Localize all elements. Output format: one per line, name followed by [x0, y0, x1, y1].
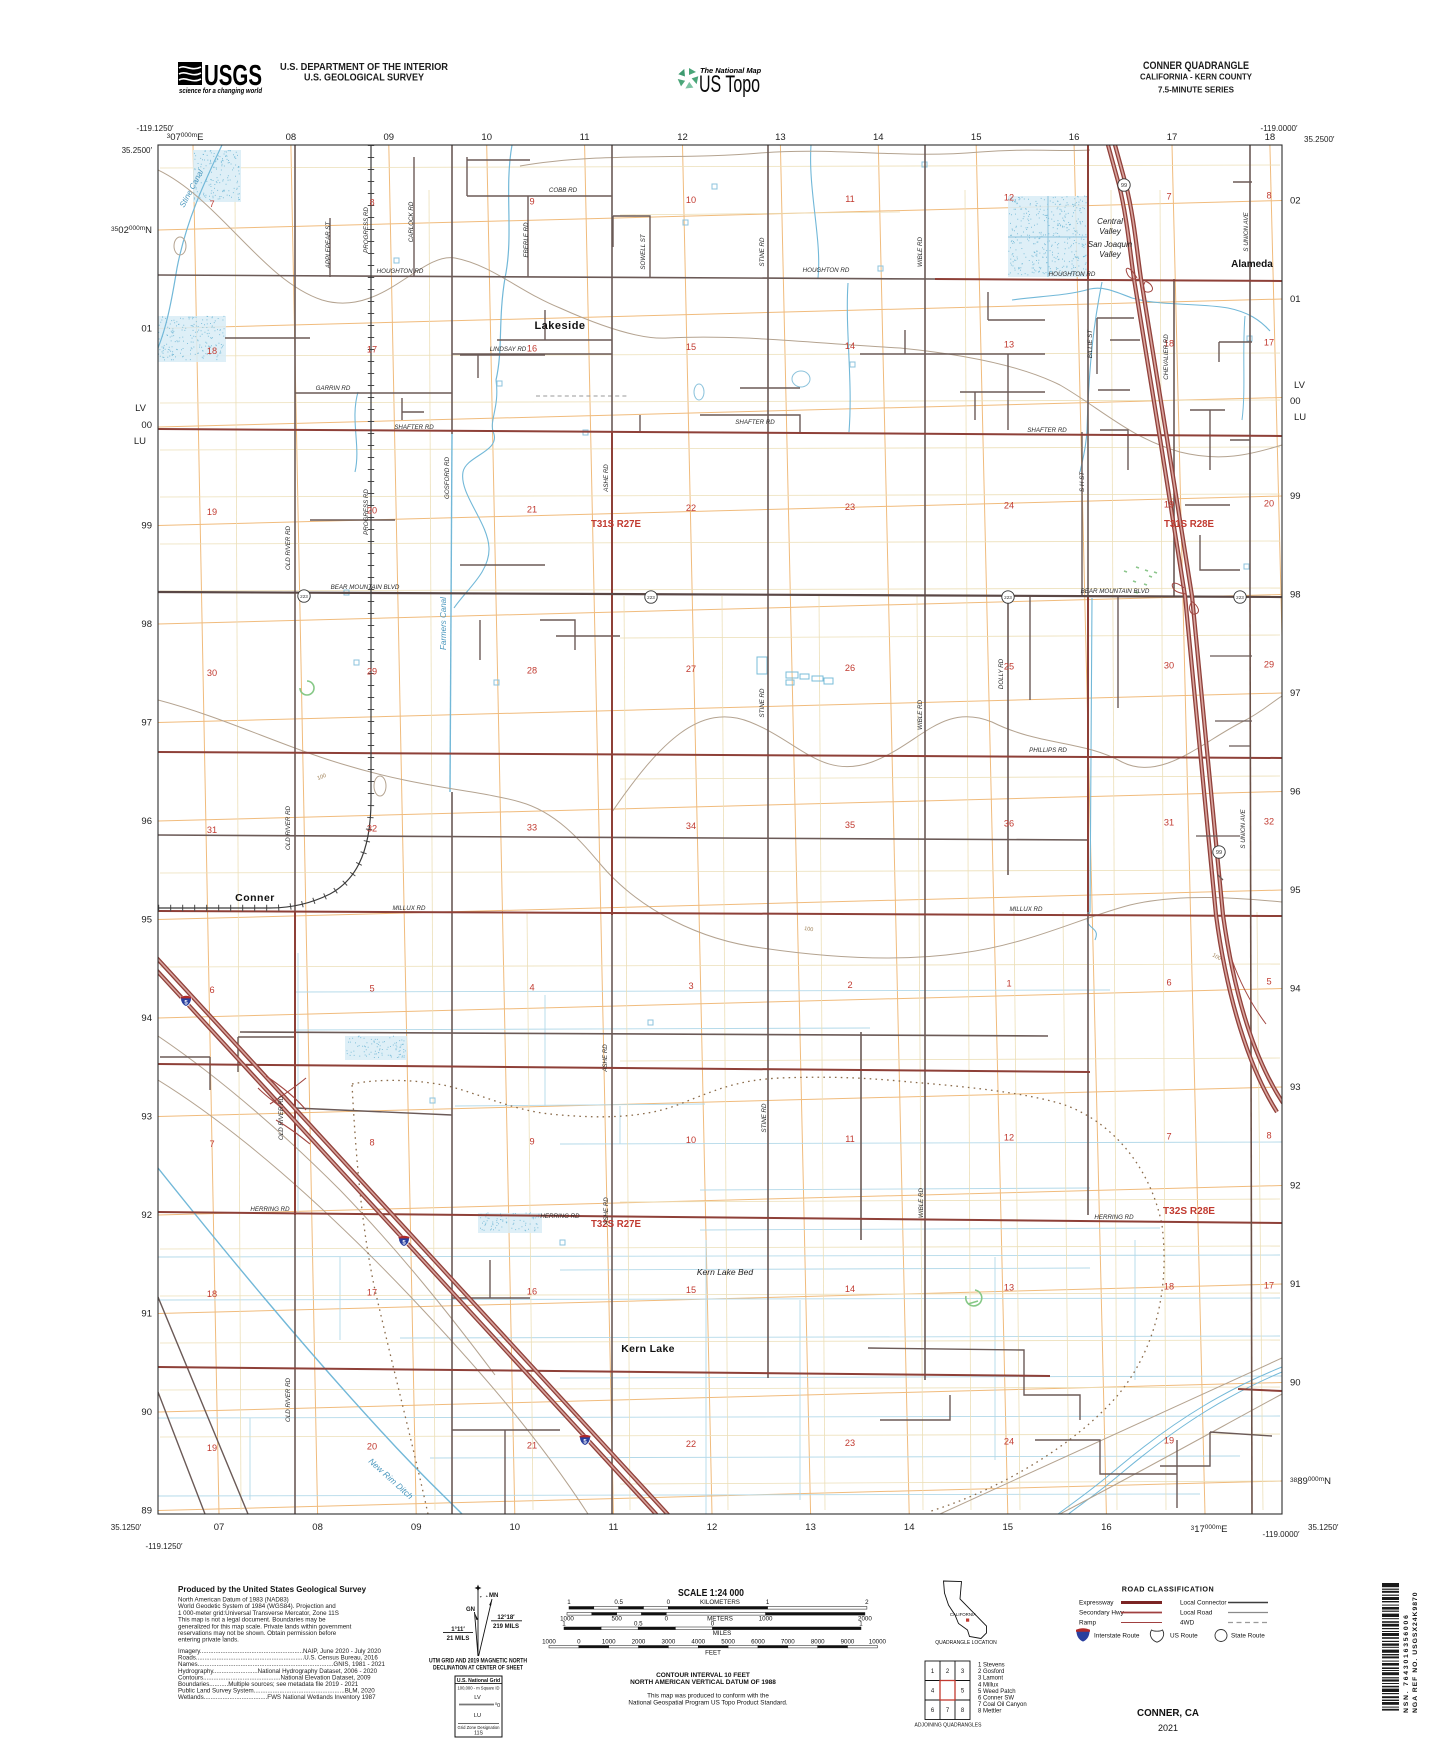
svg-text:12: 12 [1004, 1133, 1014, 1143]
svg-text:18: 18 [1265, 132, 1276, 143]
svg-text:18: 18 [207, 1289, 217, 1299]
svg-text:4: 4 [529, 982, 534, 992]
svg-text:93: 93 [141, 1112, 152, 1123]
svg-text:13: 13 [805, 1522, 816, 1533]
svg-text:Local Connector: Local Connector [1180, 1600, 1227, 1607]
svg-text:T32S R27E: T32S R27E [591, 1219, 641, 1230]
svg-text:Ramp: Ramp [1079, 1620, 1096, 1627]
svg-text:90: 90 [1290, 1378, 1301, 1389]
svg-text:14: 14 [845, 341, 855, 351]
svg-text:11: 11 [845, 194, 855, 204]
svg-text:21: 21 [527, 504, 537, 514]
svg-text:93: 93 [1290, 1082, 1301, 1093]
svg-text:6000: 6000 [751, 1639, 765, 1646]
svg-text:21 MILS: 21 MILS [447, 1636, 470, 1642]
svg-text:16: 16 [1101, 1522, 1112, 1533]
svg-text:10: 10 [510, 1522, 521, 1533]
svg-text:-119.1250′: -119.1250′ [137, 124, 174, 133]
svg-text:15: 15 [971, 132, 982, 143]
svg-text:1000: 1000 [759, 1616, 773, 1623]
svg-text:19: 19 [1164, 499, 1174, 509]
svg-text:25: 25 [1004, 662, 1014, 672]
svg-text:8: 8 [1266, 1131, 1271, 1141]
svg-text:S H ST: S H ST [1079, 471, 1086, 492]
svg-text:CONNER, CA: CONNER, CA [1137, 1707, 1199, 1719]
svg-text:HERRING RD: HERRING RD [250, 1206, 290, 1213]
svg-text:BEAR MOUNTAIN BLVD: BEAR MOUNTAIN BLVD [1081, 588, 1150, 595]
svg-text:10: 10 [686, 1135, 696, 1145]
svg-text:5: 5 [1266, 977, 1271, 987]
svg-text:4000: 4000 [691, 1639, 705, 1646]
svg-text:92: 92 [141, 1210, 152, 1221]
svg-text:14: 14 [845, 1284, 855, 1294]
svg-text:National Geospatial Program US: National Geospatial Program US Topo Prod… [628, 1700, 787, 1707]
svg-text:0: 0 [667, 1599, 671, 1606]
svg-text:science for a changing world: science for a changing world [179, 86, 262, 95]
svg-text:2021: 2021 [1158, 1723, 1178, 1733]
svg-text:SCALE 1:24 000: SCALE 1:24 000 [678, 1587, 744, 1599]
svg-text:GARRIN RD: GARRIN RD [316, 385, 351, 392]
svg-text:US Topo: US Topo [699, 71, 760, 98]
svg-text:90: 90 [141, 1407, 152, 1418]
svg-text:00: 00 [1290, 396, 1301, 407]
svg-text:08: 08 [312, 1522, 323, 1533]
svg-text:GN: GN [466, 1607, 475, 1613]
svg-text:LU: LU [1294, 412, 1306, 423]
svg-text:32: 32 [367, 824, 377, 834]
svg-text:US Route: US Route [1170, 1633, 1198, 1640]
svg-text:LINDSAY RD: LINDSAY RD [490, 346, 527, 353]
svg-text:7: 7 [1166, 191, 1171, 201]
svg-text:HOUGHTON RD: HOUGHTON RD [1049, 271, 1096, 278]
svg-text:NGA REF NO. USGSX24K9870: NGA REF NO. USGSX24K9870 [1412, 1591, 1419, 1713]
svg-text:STINE RD: STINE RD [759, 237, 766, 266]
svg-text:17: 17 [1264, 338, 1274, 348]
svg-text:1: 1 [562, 1621, 566, 1628]
svg-text:U.S. GEOLOGICAL SURVEY: U.S. GEOLOGICAL SURVEY [304, 73, 424, 84]
svg-text:BEAR MOUNTAIN BLVD: BEAR MOUNTAIN BLVD [331, 584, 400, 591]
svg-text:9: 9 [529, 1136, 534, 1146]
svg-text:19: 19 [1164, 1435, 1174, 1445]
svg-text:96: 96 [141, 816, 152, 827]
svg-text:Farmers Canal: Farmers Canal [439, 597, 448, 650]
svg-text:97: 97 [1290, 688, 1301, 699]
svg-text:2000: 2000 [632, 1639, 646, 1646]
svg-text:27: 27 [686, 664, 696, 674]
svg-text:16: 16 [527, 1286, 537, 1296]
svg-text:10: 10 [686, 195, 696, 205]
svg-text:PHILLIPS RD: PHILLIPS RD [1029, 747, 1067, 754]
svg-text:32: 32 [1264, 817, 1274, 827]
svg-text:COBB RD: COBB RD [549, 187, 578, 194]
svg-text:20: 20 [1264, 499, 1274, 509]
svg-text:2 Gosford: 2 Gosford [978, 1669, 1004, 1675]
svg-text:DOLLY RD: DOLLY RD [998, 658, 1005, 689]
svg-text:S UNION AVE: S UNION AVE [1240, 808, 1247, 848]
svg-text:10: 10 [481, 132, 492, 143]
svg-text:01: 01 [1290, 294, 1301, 305]
svg-text:ADJOINING QUADRANGLES: ADJOINING QUADRANGLES [915, 1723, 983, 1729]
svg-text:99: 99 [1216, 850, 1222, 856]
svg-text:14: 14 [873, 132, 884, 143]
svg-text:16: 16 [527, 343, 537, 353]
svg-text:18: 18 [207, 346, 217, 356]
svg-text:CARLOCK RD: CARLOCK RD [408, 201, 415, 242]
svg-text:Produced by the United States: Produced by the United States Geological… [178, 1585, 367, 1594]
svg-text:15: 15 [686, 342, 696, 352]
svg-text:89: 89 [141, 1506, 152, 1517]
svg-text:-119.1250′: -119.1250′ [146, 1542, 183, 1551]
svg-text:HOUGHTON RD: HOUGHTON RD [377, 268, 424, 275]
svg-text:Alameda: Alameda [1231, 259, 1273, 270]
svg-text:WIBLE RD: WIBLE RD [917, 237, 924, 267]
svg-text:29: 29 [1264, 660, 1274, 670]
svg-text:PROGRESS RD: PROGRESS RD [363, 489, 370, 535]
svg-text:LV: LV [1294, 380, 1306, 391]
svg-text:07: 07 [214, 1522, 225, 1533]
svg-text:0.5: 0.5 [614, 1599, 623, 1606]
svg-text:6 Conner SW: 6 Conner SW [978, 1696, 1014, 1702]
svg-text:21: 21 [527, 1440, 537, 1450]
svg-text:SHAFTER RD: SHAFTER RD [394, 424, 434, 431]
svg-text:7: 7 [209, 1139, 214, 1149]
svg-text:5000: 5000 [721, 1639, 735, 1646]
svg-text:35.2500′: 35.2500′ [1304, 135, 1335, 144]
svg-text:96: 96 [1290, 787, 1301, 798]
svg-text:28: 28 [527, 665, 537, 675]
svg-text:Wetlands......................: Wetlands................................… [178, 1694, 376, 1701]
svg-text:95: 95 [141, 915, 152, 926]
svg-text:Valley: Valley [1099, 250, 1121, 259]
svg-text:100: 100 [804, 926, 814, 933]
svg-text:DECLINATION AT CENTER OF SHEET: DECLINATION AT CENTER OF SHEET [433, 1665, 523, 1672]
svg-text:MN: MN [489, 1593, 498, 1599]
svg-text:99: 99 [141, 521, 152, 532]
svg-text:BILLIE ST: BILLIE ST [1087, 329, 1094, 358]
svg-text:Valley: Valley [1099, 227, 1121, 236]
svg-text:1: 1 [859, 1621, 863, 1628]
svg-text:31: 31 [207, 825, 217, 835]
svg-text:LV: LV [474, 1695, 481, 1701]
svg-text:17: 17 [367, 345, 377, 355]
svg-text:UTM GRID AND 2019 MAGNETIC NOR: UTM GRID AND 2019 MAGNETIC NORTH [429, 1658, 527, 1665]
svg-text:12°18′: 12°18′ [497, 1615, 515, 1621]
svg-text:Local Road: Local Road [1180, 1610, 1213, 1617]
svg-text:12: 12 [707, 1522, 718, 1533]
svg-text:91: 91 [1290, 1279, 1301, 1290]
svg-text:223: 223 [1004, 595, 1012, 600]
svg-text:92: 92 [1290, 1181, 1301, 1192]
svg-text:0: 0 [577, 1639, 581, 1646]
svg-text:98: 98 [1290, 590, 1301, 601]
svg-text:13: 13 [775, 132, 786, 143]
svg-text:24: 24 [1004, 501, 1014, 511]
svg-text:ASHE RD: ASHE RD [603, 1197, 610, 1226]
svg-text:22: 22 [686, 503, 696, 513]
svg-text:31: 31 [1164, 817, 1174, 827]
svg-text:94: 94 [1290, 984, 1301, 995]
svg-text:94: 94 [141, 1013, 152, 1024]
svg-text:Kern Lake Bed: Kern Lake Bed [697, 1267, 754, 1277]
svg-text:36: 36 [1004, 819, 1014, 829]
svg-text:19: 19 [207, 1443, 217, 1453]
svg-text:223: 223 [300, 594, 308, 599]
svg-text:0: 0 [711, 1621, 715, 1628]
svg-text:35.2500′: 35.2500′ [122, 146, 153, 155]
svg-text:4WD: 4WD [1180, 1620, 1195, 1627]
svg-text:2: 2 [865, 1599, 869, 1606]
svg-text:This map was produced to confo: This map was produced to conform with th… [647, 1693, 769, 1700]
svg-text:9000: 9000 [841, 1639, 855, 1646]
svg-text:entering private lands.: entering private lands. [178, 1637, 239, 1644]
svg-text:24: 24 [1004, 1437, 1014, 1447]
svg-text:35: 35 [845, 820, 855, 830]
svg-text:12: 12 [1004, 193, 1014, 203]
svg-text:7000: 7000 [781, 1639, 795, 1646]
svg-text:09: 09 [384, 132, 395, 143]
svg-text:1000: 1000 [542, 1639, 556, 1646]
svg-text:HOUGHTON RD: HOUGHTON RD [803, 267, 850, 274]
svg-text:12: 12 [677, 132, 688, 143]
svg-text:01: 01 [141, 324, 152, 335]
svg-text:1: 1 [766, 1599, 770, 1606]
svg-text:Kern Lake: Kern Lake [621, 1343, 674, 1355]
svg-text:CONNER QUADRANGLE: CONNER QUADRANGLE [1143, 60, 1249, 72]
svg-text:NORTH AMERICAN VERTICAL DATUM: NORTH AMERICAN VERTICAL DATUM OF 1988 [630, 1679, 776, 1686]
svg-text:5: 5 [369, 984, 374, 994]
svg-text:MILLUX RD: MILLUX RD [392, 905, 426, 912]
svg-text:WIBLE RD: WIBLE RD [918, 1188, 925, 1218]
svg-text:19: 19 [207, 507, 217, 517]
svg-text:ASHE RD: ASHE RD [602, 1044, 609, 1073]
svg-text:ROAD CLASSIFICATION: ROAD CLASSIFICATION [1122, 1585, 1214, 1594]
svg-text:Grid Zone Designation: Grid Zone Designation [458, 1725, 500, 1730]
svg-text:1: 1 [567, 1599, 571, 1606]
svg-text:99: 99 [1121, 183, 1127, 189]
svg-text:EBERLE RD: EBERLE RD [523, 222, 530, 258]
svg-text:99: 99 [1290, 491, 1301, 502]
svg-text:SHAFTER RD: SHAFTER RD [735, 419, 775, 426]
svg-text:LU: LU [474, 1713, 481, 1719]
svg-text:17: 17 [367, 1288, 377, 1298]
svg-text:7.5-MINUTE SERIES: 7.5-MINUTE SERIES [1158, 85, 1234, 95]
svg-text:U.S. National Grid: U.S. National Grid [457, 1678, 500, 1684]
svg-text:Secondary Hwy: Secondary Hwy [1079, 1610, 1125, 1617]
svg-text:QUADRANGLE LOCATION: QUADRANGLE LOCATION [935, 1640, 997, 1646]
svg-text:11: 11 [845, 1134, 855, 1144]
svg-text:223: 223 [647, 595, 655, 600]
svg-text:OLD RIVER RD: OLD RIVER RD [278, 1095, 285, 1140]
svg-text:SOWELL ST: SOWELL ST [640, 233, 647, 270]
svg-text:SHAFTER RD: SHAFTER RD [1027, 427, 1067, 434]
svg-text:STINE RD: STINE RD [761, 1103, 768, 1132]
svg-text:OLD RIVER RD: OLD RIVER RD [285, 1377, 292, 1422]
svg-text:13: 13 [1004, 1283, 1014, 1293]
svg-text:1°11′: 1°11′ [451, 1627, 465, 1633]
svg-text:Lakeside: Lakeside [534, 320, 585, 332]
svg-text:95: 95 [1290, 885, 1301, 896]
svg-text:8000: 8000 [811, 1639, 825, 1646]
svg-text:23: 23 [845, 502, 855, 512]
svg-text:1 Stevens: 1 Stevens [978, 1663, 1005, 1669]
svg-text:1: 1 [1006, 979, 1011, 989]
svg-text:State Route: State Route [1231, 1633, 1265, 1640]
svg-text:HERRING RD: HERRING RD [1094, 1214, 1134, 1221]
svg-text:14: 14 [904, 1522, 915, 1533]
svg-text:33: 33 [527, 822, 537, 832]
svg-text:13: 13 [1004, 340, 1014, 350]
svg-text:0.5: 0.5 [634, 1621, 643, 1628]
svg-text:16: 16 [1069, 132, 1080, 143]
svg-text:8: 8 [369, 1138, 374, 1148]
svg-text:0: 0 [665, 1616, 669, 1623]
svg-text:-119.0000′: -119.0000′ [1263, 1530, 1300, 1539]
svg-text:4 Millux: 4 Millux [978, 1682, 998, 1688]
svg-text:9: 9 [529, 196, 534, 206]
svg-text:98: 98 [141, 619, 152, 630]
svg-text:08: 08 [286, 132, 297, 143]
svg-text:8: 8 [1266, 191, 1271, 201]
svg-text:26: 26 [845, 663, 855, 673]
svg-text:223: 223 [1236, 595, 1244, 600]
svg-text:15: 15 [1003, 1522, 1014, 1533]
svg-text:00: 00 [141, 420, 152, 431]
svg-text:100,000 - m Square ID: 100,000 - m Square ID [458, 1685, 501, 1690]
svg-text:S UNION AVE: S UNION AVE [1243, 211, 1250, 251]
svg-text:MILES: MILES [713, 1630, 732, 1637]
svg-text:35.1250′: 35.1250′ [1308, 1523, 1339, 1532]
svg-text:OLD RIVER RD: OLD RIVER RD [285, 805, 292, 850]
svg-text:5 Weed Patch: 5 Weed Patch [978, 1689, 1016, 1695]
svg-text:FEET: FEET [705, 1650, 721, 1657]
svg-text:18: 18 [1164, 1281, 1174, 1291]
svg-text:Expressway: Expressway [1079, 1600, 1114, 1607]
svg-text:NSN. 7643016356006: NSN. 7643016356006 [1403, 1613, 1410, 1713]
svg-text:219 MILS: 219 MILS [493, 1624, 519, 1630]
svg-text:11: 11 [608, 1522, 618, 1533]
svg-text:San Joaquin: San Joaquin [1088, 240, 1133, 249]
svg-text:T31S R28E: T31S R28E [1164, 519, 1214, 530]
svg-text:CONTOUR INTERVAL 10 FEET: CONTOUR INTERVAL 10 FEET [656, 1672, 750, 1679]
svg-text:15: 15 [686, 1285, 696, 1295]
svg-text:CALIFORNIA - KERN COUNTY: CALIFORNIA - KERN COUNTY [1140, 72, 1252, 82]
svg-text:PROGRESS RD: PROGRESS RD [363, 207, 370, 253]
svg-text:02: 02 [1290, 196, 1301, 207]
svg-text:10000: 10000 [869, 1639, 887, 1646]
svg-text:22: 22 [686, 1439, 696, 1449]
svg-text:35.1250′: 35.1250′ [111, 1523, 142, 1532]
svg-text:11: 11 [580, 132, 590, 143]
svg-text:T31S R27E: T31S R27E [591, 519, 641, 530]
svg-text:Interstate Route: Interstate Route [1094, 1633, 1140, 1640]
svg-text:20: 20 [367, 1442, 377, 1452]
svg-text:3: 3 [688, 981, 693, 991]
svg-text:30: 30 [1164, 660, 1174, 670]
svg-text:7: 7 [209, 199, 214, 209]
svg-text:34: 34 [686, 821, 696, 831]
svg-text:1000: 1000 [602, 1639, 616, 1646]
svg-text:STINE RD: STINE RD [759, 688, 766, 717]
svg-text:OLD RIVER RD: OLD RIVER RD [285, 525, 292, 570]
svg-text:7: 7 [1166, 1131, 1171, 1141]
svg-text:29: 29 [367, 667, 377, 677]
svg-text:T32S R28E: T32S R28E [1163, 1206, 1215, 1217]
svg-text:7 Coal Oil Canyon: 7 Coal Oil Canyon [978, 1702, 1027, 1708]
svg-text:8 Mettler: 8 Mettler [978, 1709, 1001, 1715]
svg-text:11S: 11S [474, 1731, 483, 1737]
svg-text:APPLEPEAR ST: APPLEPEAR ST [325, 221, 332, 270]
svg-text:3 Lamont: 3 Lamont [978, 1676, 1003, 1682]
svg-text:CALIFORNIA: CALIFORNIA [950, 1612, 976, 1617]
svg-text:WIBLE RD: WIBLE RD [917, 700, 924, 730]
svg-text:17: 17 [1264, 1281, 1274, 1291]
svg-text:97: 97 [141, 718, 152, 729]
svg-text:09: 09 [411, 1522, 422, 1533]
svg-text:GOSFORD RD: GOSFORD RD [444, 457, 451, 499]
svg-text:LV: LV [135, 403, 147, 414]
svg-text:3000: 3000 [662, 1639, 676, 1646]
svg-text:Central: Central [1097, 217, 1123, 226]
svg-text:KILOMETERS: KILOMETERS [700, 1599, 740, 1606]
svg-text:30: 30 [207, 668, 217, 678]
svg-text:Conner: Conner [235, 892, 275, 904]
svg-text:ASHE RD: ASHE RD [603, 464, 610, 493]
svg-text:500: 500 [612, 1616, 623, 1623]
svg-text:2: 2 [847, 980, 852, 990]
svg-text:6: 6 [1166, 977, 1171, 987]
svg-text:LU: LU [134, 436, 146, 447]
svg-text:17: 17 [1167, 132, 1178, 143]
svg-text:HERRING RD: HERRING RD [540, 1213, 580, 1220]
svg-text:23: 23 [845, 1438, 855, 1448]
svg-text:8: 8 [369, 198, 374, 208]
svg-text:MILLUX RD: MILLUX RD [1009, 906, 1043, 913]
svg-text:91: 91 [141, 1309, 152, 1320]
svg-text:U.S. DEPARTMENT OF THE INTERIO: U.S. DEPARTMENT OF THE INTERIOR [280, 62, 449, 73]
svg-text:CHEVALIER RD: CHEVALIER RD [1163, 334, 1170, 380]
svg-text:6: 6 [209, 985, 214, 995]
